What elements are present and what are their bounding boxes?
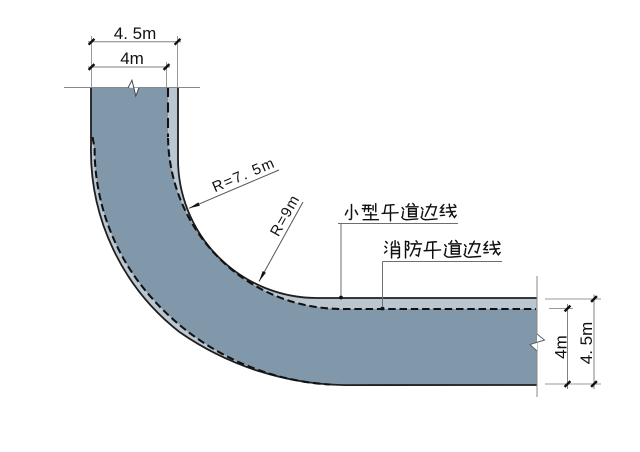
svg-text:4. 5m: 4. 5m xyxy=(114,24,157,43)
svg-text:4. 5m: 4. 5m xyxy=(577,322,596,365)
svg-text:4m: 4m xyxy=(120,49,144,68)
svg-text:4m: 4m xyxy=(552,335,571,359)
